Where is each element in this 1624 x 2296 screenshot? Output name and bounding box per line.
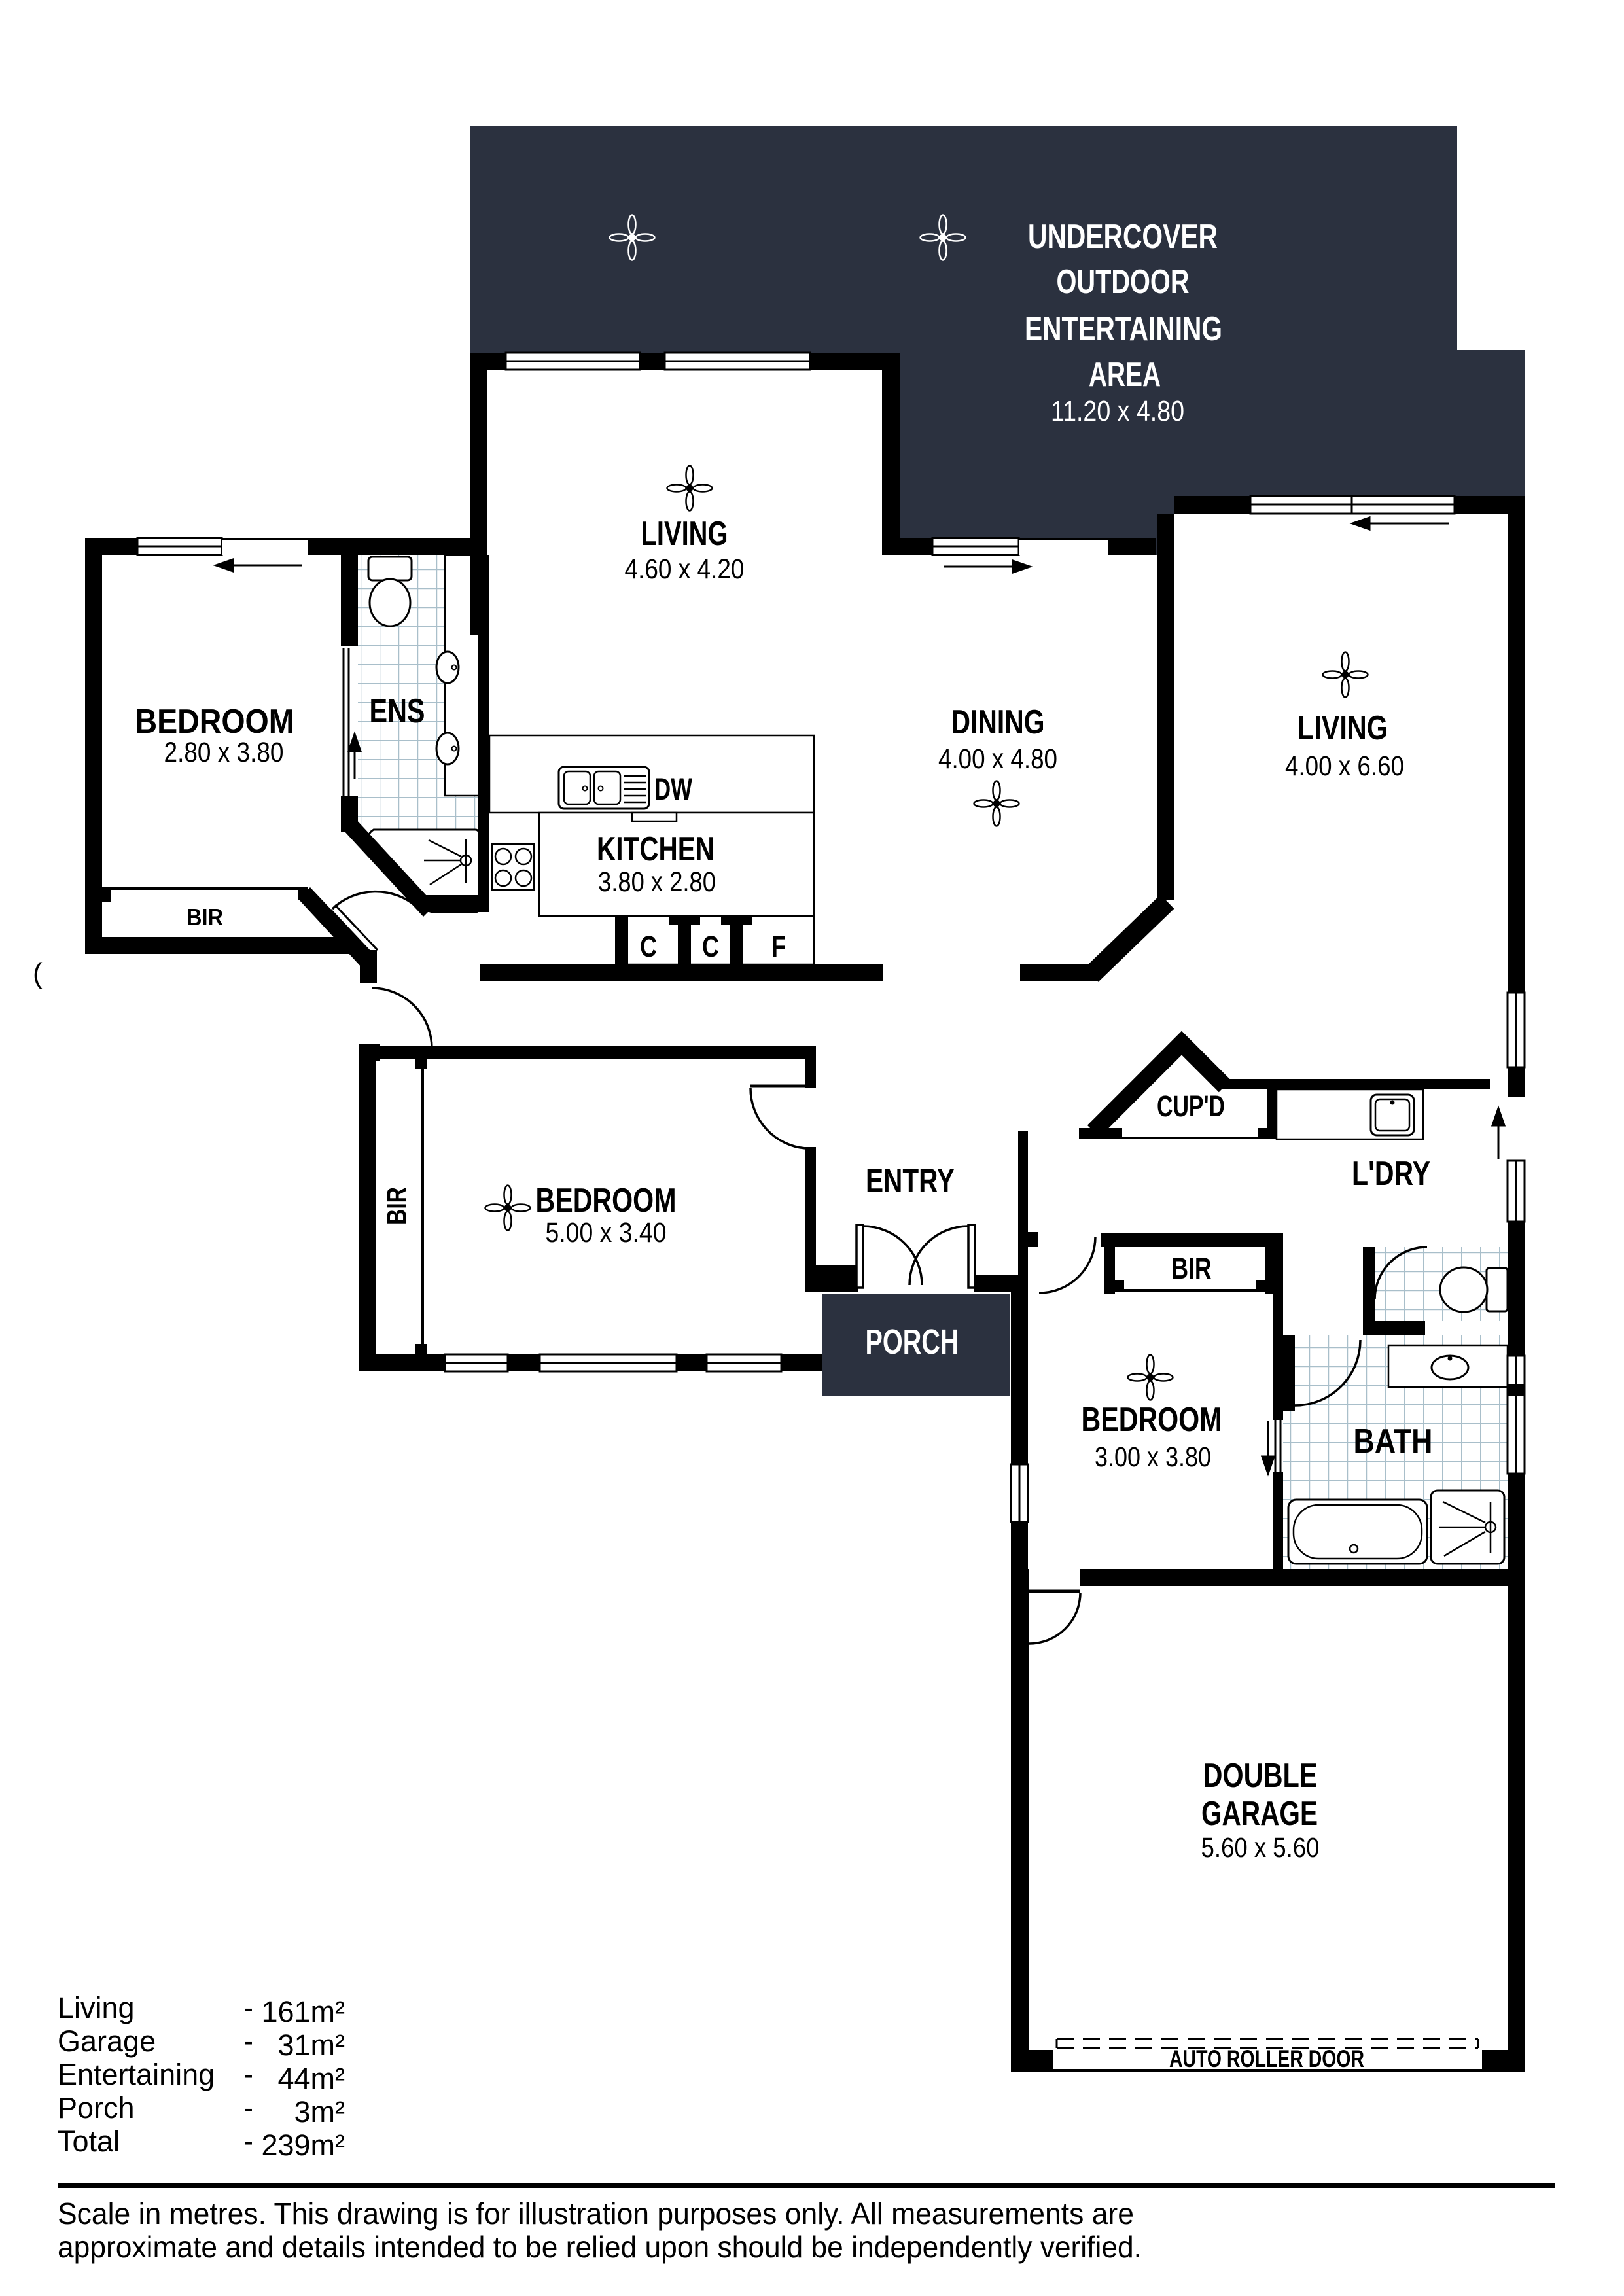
svg-text:BIR: BIR <box>381 1187 412 1225</box>
svg-text:CUP'D: CUP'D <box>1157 1089 1225 1123</box>
svg-text:44m²: 44m² <box>277 2062 345 2095</box>
svg-text:AREA: AREA <box>1089 356 1161 394</box>
svg-text:BEDROOM: BEDROOM <box>1082 1401 1222 1439</box>
svg-text:DW: DW <box>654 771 692 806</box>
svg-text:LIVING: LIVING <box>641 515 728 553</box>
svg-text:5.00 x 3.40: 5.00 x 3.40 <box>546 1217 667 1248</box>
svg-text:BATH: BATH <box>1354 1422 1433 1460</box>
svg-text:GARAGE: GARAGE <box>1201 1795 1318 1833</box>
svg-text:239m²: 239m² <box>261 2128 345 2162</box>
svg-text:Scale in metres. This drawing: Scale in metres. This drawing is for ill… <box>58 2197 1134 2231</box>
svg-text:161m²: 161m² <box>261 1995 345 2028</box>
svg-text:Porch: Porch <box>58 2091 135 2125</box>
svg-text:Entertaining: Entertaining <box>58 2058 215 2091</box>
svg-text:BIR: BIR <box>1172 1252 1212 1285</box>
svg-text:-: - <box>243 2125 253 2158</box>
svg-text:DINING: DINING <box>951 703 1045 741</box>
svg-text:C: C <box>640 930 657 963</box>
svg-text:BEDROOM: BEDROOM <box>135 703 294 741</box>
svg-text:C: C <box>702 930 719 963</box>
svg-text:F: F <box>771 930 786 963</box>
svg-text:2.80 x 3.80: 2.80 x 3.80 <box>164 737 284 768</box>
svg-text:5.60 x 5.60: 5.60 x 5.60 <box>1201 1832 1320 1863</box>
svg-text:-: - <box>243 2091 253 2125</box>
svg-text:3.80 x 2.80: 3.80 x 2.80 <box>598 866 716 898</box>
svg-text:KITCHEN: KITCHEN <box>597 830 715 868</box>
svg-text:BEDROOM: BEDROOM <box>536 1182 677 1220</box>
svg-text:DOUBLE: DOUBLE <box>1203 1757 1318 1795</box>
svg-text:-: - <box>243 1991 253 2024</box>
svg-text:3.00 x 3.80: 3.00 x 3.80 <box>1095 1441 1211 1473</box>
svg-text:3m²: 3m² <box>294 2095 345 2128</box>
svg-text:4.00 x 4.80: 4.00 x 4.80 <box>938 743 1057 775</box>
svg-text:Total: Total <box>58 2125 120 2158</box>
svg-text:Living: Living <box>58 1991 135 2024</box>
svg-text:OUTDOOR: OUTDOOR <box>1057 263 1190 301</box>
svg-text:ENTERTAINING: ENTERTAINING <box>1025 310 1222 348</box>
svg-text:UNDERCOVER: UNDERCOVER <box>1028 218 1218 256</box>
svg-text:-: - <box>243 2058 253 2091</box>
svg-text:L'DRY: L'DRY <box>1352 1155 1430 1193</box>
svg-text:4.60 x 4.20: 4.60 x 4.20 <box>625 554 745 585</box>
svg-text:Garage: Garage <box>58 2024 156 2058</box>
svg-text:approximate and details intend: approximate and details intended to be r… <box>58 2230 1142 2264</box>
svg-text:-: - <box>243 2024 253 2058</box>
svg-text:11.20 x 4.80: 11.20 x 4.80 <box>1051 395 1184 427</box>
svg-text:(: ( <box>33 957 43 989</box>
svg-text:LIVING: LIVING <box>1297 709 1388 747</box>
svg-text:4.00 x 6.60: 4.00 x 6.60 <box>1285 751 1404 782</box>
svg-text:BIR: BIR <box>186 904 223 930</box>
svg-text:ENTRY: ENTRY <box>866 1162 955 1200</box>
svg-text:AUTO ROLLER DOOR: AUTO ROLLER DOOR <box>1169 2045 1364 2072</box>
svg-text:ENS: ENS <box>370 692 425 730</box>
svg-text:31m²: 31m² <box>277 2028 345 2062</box>
svg-text:PORCH: PORCH <box>866 1322 959 1362</box>
